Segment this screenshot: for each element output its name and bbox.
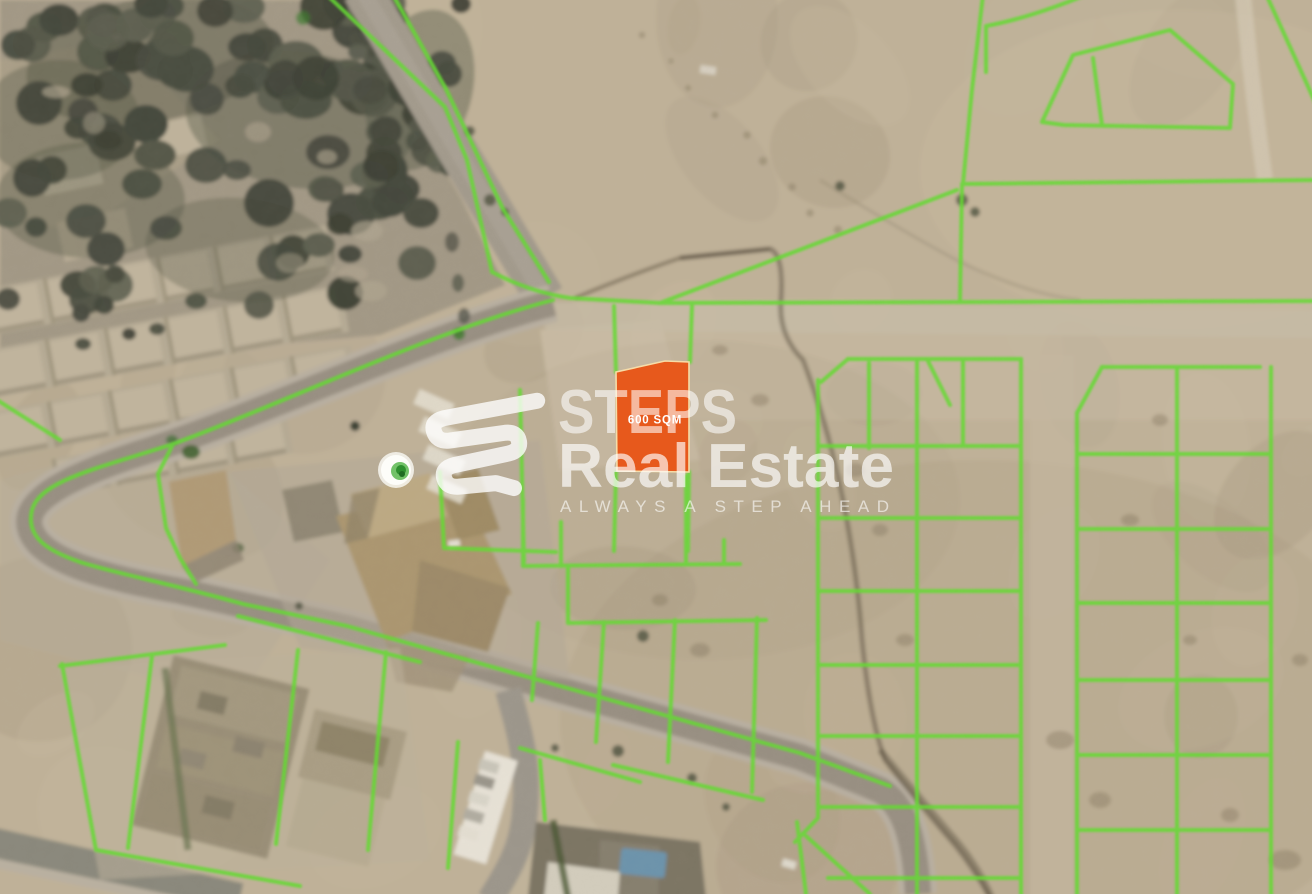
svg-text:600 SQM: 600 SQM <box>628 415 682 427</box>
svg-text:ALWAYS A STEP AHEAD: ALWAYS A STEP AHEAD <box>560 497 889 516</box>
svg-text:Real Estate: Real Estate <box>558 432 894 501</box>
